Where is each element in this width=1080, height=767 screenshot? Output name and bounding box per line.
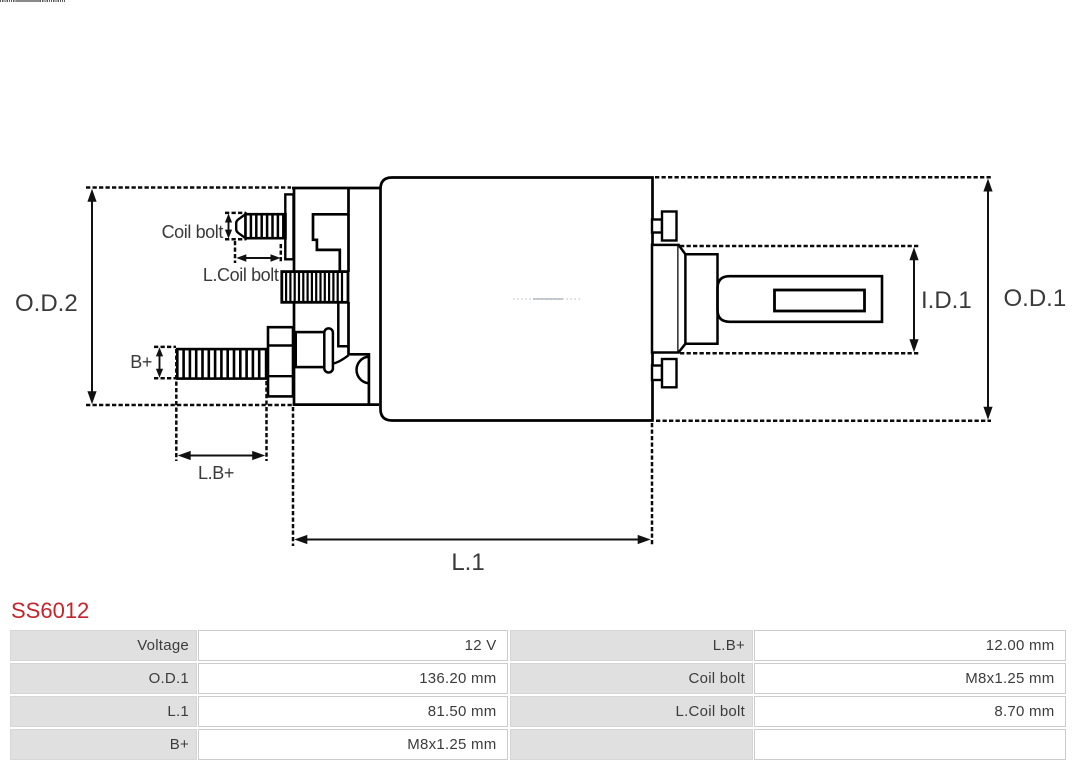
svg-text:Coil bolt: Coil bolt: [162, 222, 224, 242]
svg-text:O.D.1: O.D.1: [1004, 285, 1067, 312]
svg-text:O.D.2: O.D.2: [15, 290, 78, 317]
svg-text:L.Coil bolt: L.Coil bolt: [203, 265, 279, 285]
svg-text:L.B+: L.B+: [198, 463, 234, 483]
svg-text:L.1: L.1: [451, 549, 484, 576]
svg-text:B+: B+: [130, 352, 152, 372]
svg-text:I.D.1: I.D.1: [921, 287, 972, 314]
